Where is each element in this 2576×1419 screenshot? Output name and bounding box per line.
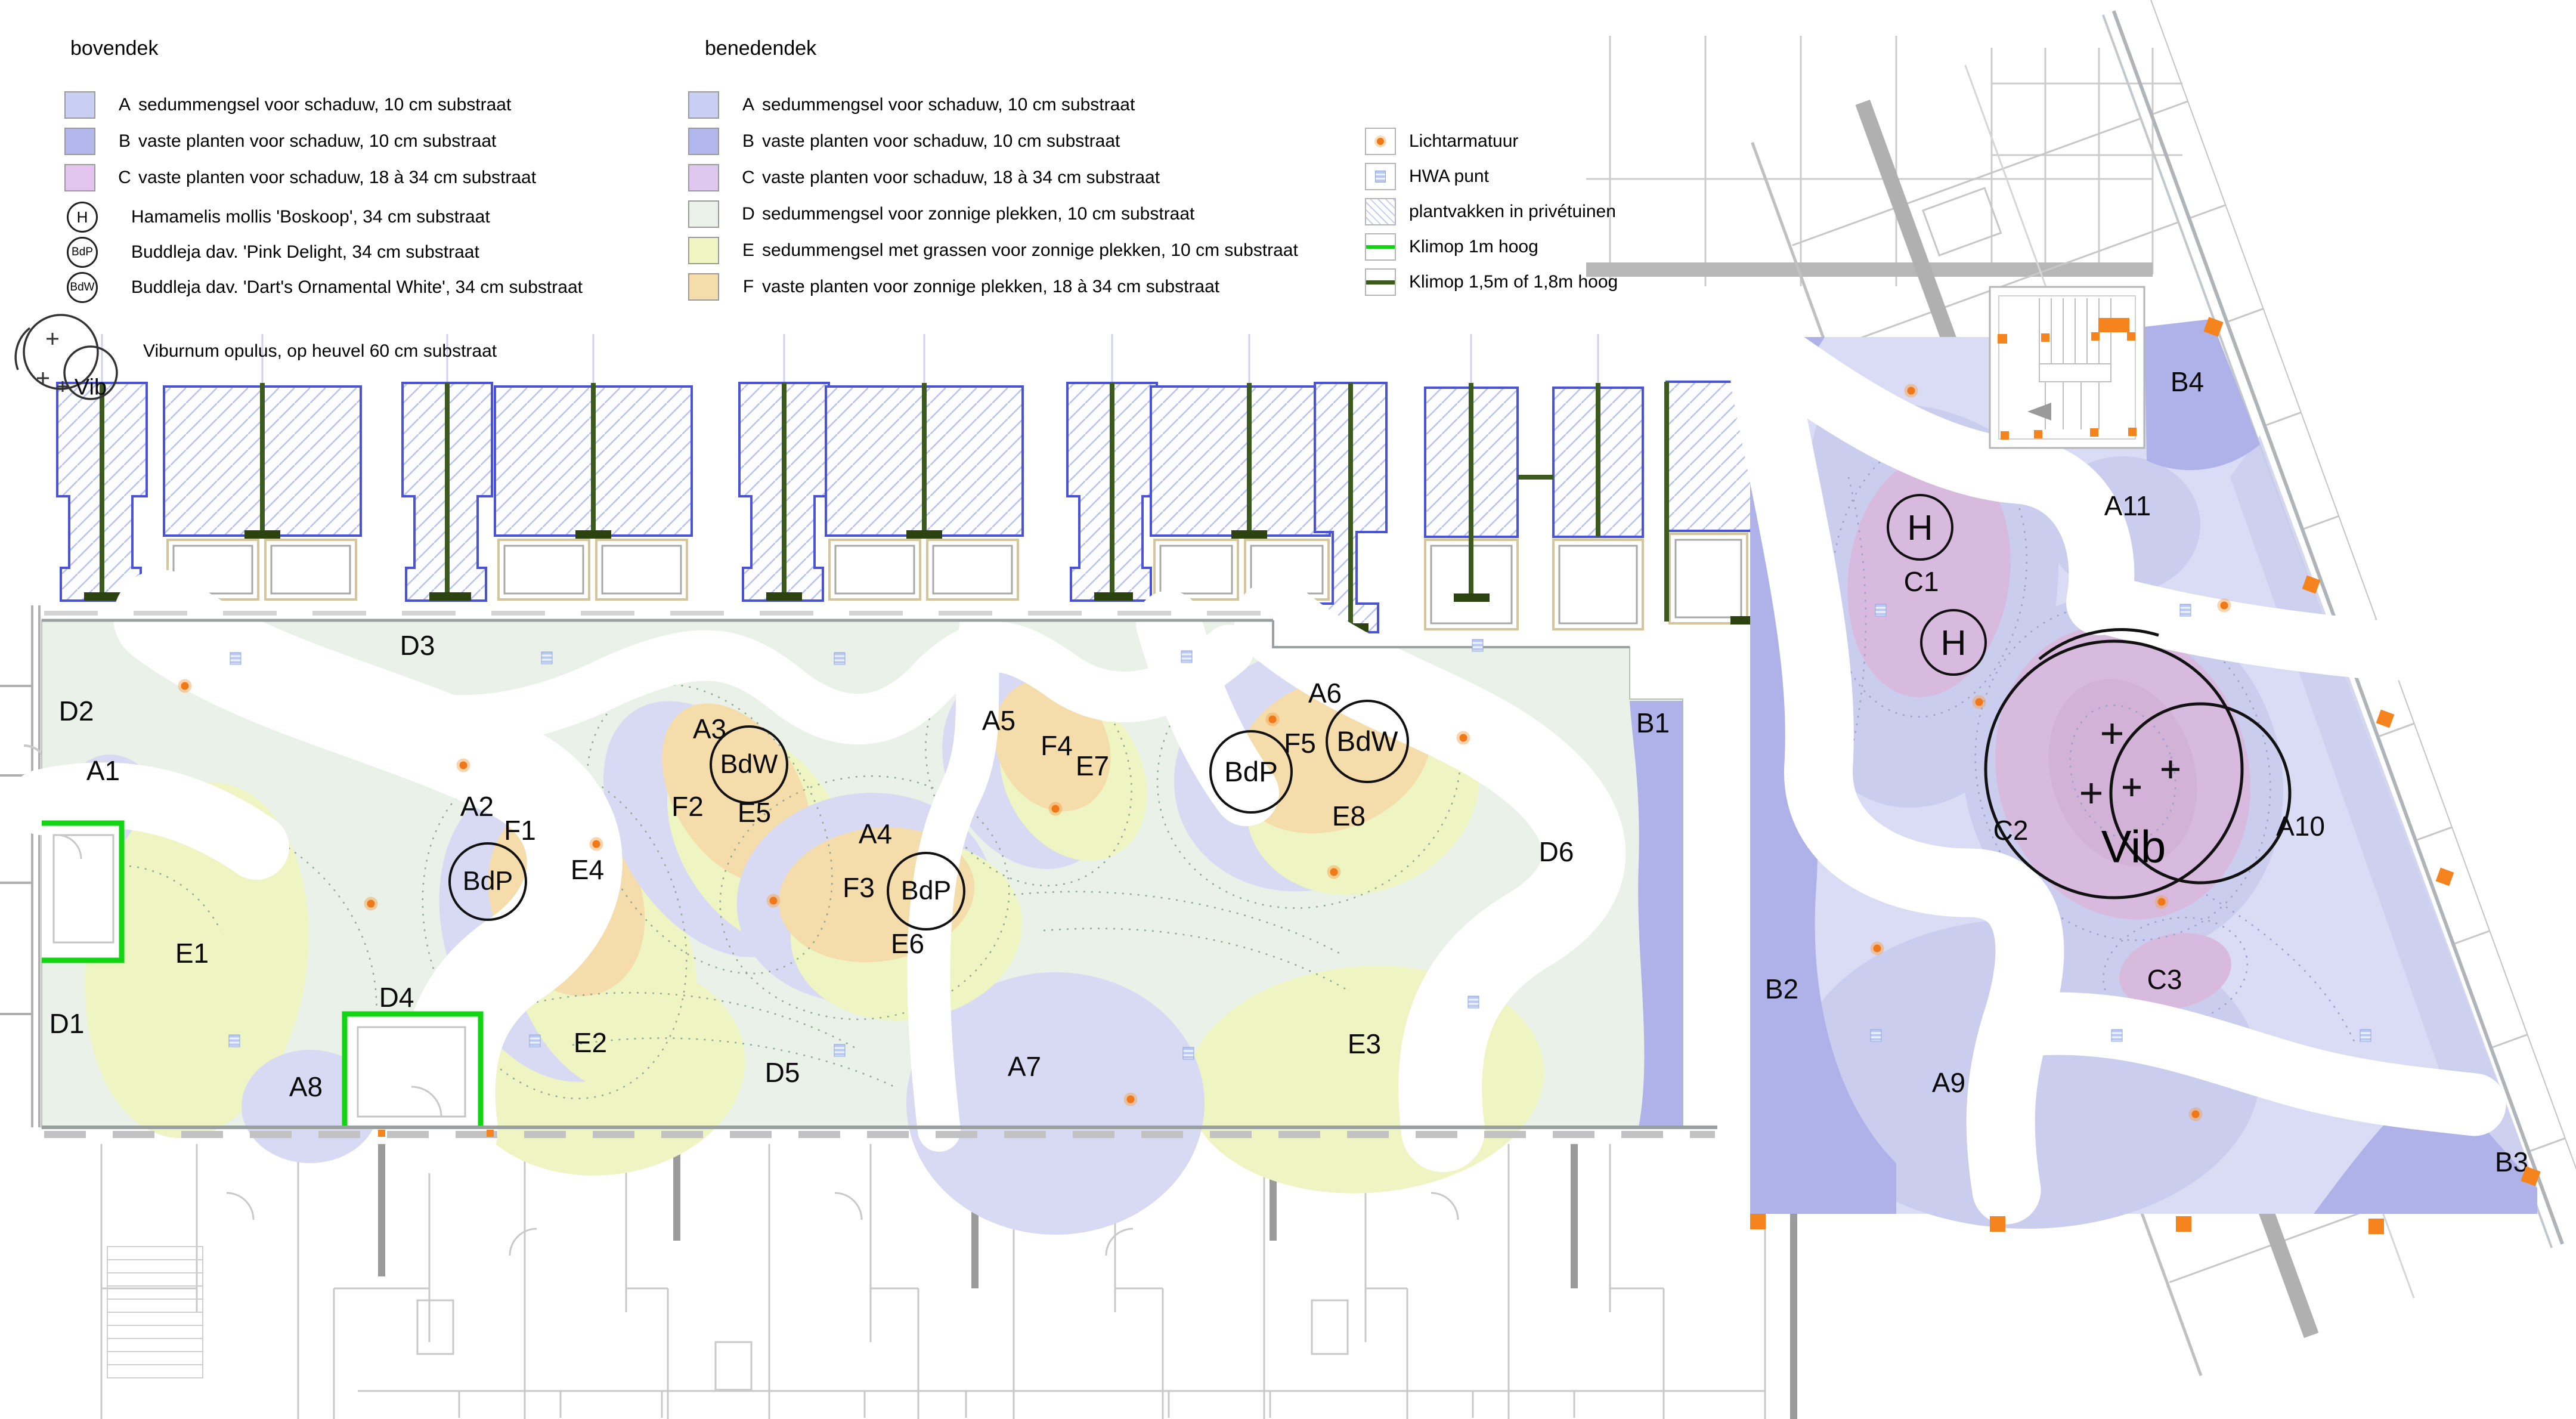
legend-bovendek-swatch-row: Cvaste planten voor schaduw, 18 à 34 cm … <box>64 164 536 191</box>
legend-symbols-row: HWA punt <box>1365 163 1489 190</box>
legend-benedendek-swatch-row: Dsedummengsel voor zonnige plekken, 10 c… <box>688 200 1194 228</box>
hwa-point-icon <box>2111 1030 2123 1042</box>
zone-label-E2: E2 <box>574 1027 607 1059</box>
legend-benedendek-title: benedendek <box>705 37 816 60</box>
light-fixture-icon <box>181 682 189 690</box>
zone-label-C2: C2 <box>1993 814 2029 846</box>
zone-label-B4: B4 <box>2171 366 2204 398</box>
light-fixture-icon <box>1330 868 1338 876</box>
zone-label-A7: A7 <box>1008 1050 1041 1083</box>
right-deck-garden <box>1750 287 2537 1229</box>
swatch-C <box>64 164 95 191</box>
zone-label-B1: B1 <box>1636 707 1670 739</box>
legend-bovendek: bovendek <box>70 37 158 83</box>
vib-legend-symbol-label: Vib <box>75 375 107 401</box>
light-fixture-icon <box>1365 128 1396 155</box>
legend-bovendek-title: bovendek <box>70 37 158 60</box>
swatch-C <box>688 164 719 191</box>
swatch-D <box>688 200 719 228</box>
zone-label-E8: E8 <box>1332 800 1366 832</box>
H-circle-icon: H <box>67 202 98 233</box>
zone-label-A4: A4 <box>859 818 892 850</box>
legend-benedendek-swatch-row: Fvaste planten voor zonnige plekken, 18 … <box>688 273 1219 301</box>
private-planting-icon <box>1365 198 1396 225</box>
light-fixture-icon <box>1460 734 1467 742</box>
building-anchor-icon <box>1750 1214 1766 1229</box>
vib-marker-label: Vib <box>2101 821 2166 873</box>
swatch-A <box>64 91 95 119</box>
swatch-B <box>64 128 95 155</box>
ivy-1m-icon <box>1365 233 1396 261</box>
legend-symbols-row: Klimop 1m hoog <box>1365 233 1538 261</box>
legend-symbols-row: plantvakken in privétuinen <box>1365 198 1616 225</box>
building-anchor-icon <box>2128 428 2137 436</box>
zone-label-A8: A8 <box>289 1071 323 1103</box>
legend-vib-row: Viburnum opulus, op heuvel 60 cm substra… <box>143 341 497 361</box>
light-fixture-icon <box>770 897 778 905</box>
zone-label-E4: E4 <box>571 854 604 886</box>
light-fixture-icon <box>367 900 375 908</box>
hwa-point-icon <box>530 1035 541 1047</box>
legend-benedendek: benedendek <box>705 37 816 83</box>
light-fixture-icon <box>2221 602 2228 610</box>
zone-label-A11: A11 <box>2104 490 2151 522</box>
building-anchor-icon <box>2127 332 2135 341</box>
BdW-marker: BdW <box>1326 700 1409 783</box>
light-fixture-icon <box>2192 1111 2200 1118</box>
zone-label-A6: A6 <box>1308 677 1342 709</box>
private-garden-plots <box>57 334 1756 632</box>
light-fixture-icon <box>460 762 467 769</box>
legend-symbols-row: Lichtarmatuur <box>1365 128 1518 155</box>
legend-bovendek-symbol-row: BdW Buddleja dav. 'Dart's Ornamental Whi… <box>67 272 583 303</box>
stairwell <box>1990 287 2144 448</box>
hwa-point-icon <box>1472 639 1484 652</box>
building-anchor-icon <box>1998 334 2007 344</box>
hwa-point-icon <box>834 1044 846 1057</box>
zone-label-D1: D1 <box>49 1007 85 1040</box>
hwa-point-icon <box>834 653 846 665</box>
zone-label-A9: A9 <box>1932 1066 1965 1099</box>
building-anchor-icon <box>378 1130 385 1137</box>
legend-vib-label: Viburnum opulus, op heuvel 60 cm substra… <box>143 341 497 361</box>
light-fixture-icon <box>593 840 600 848</box>
light-fixture-icon <box>2158 898 2166 906</box>
hwa-point-icon <box>1181 651 1193 663</box>
zone-label-D6: D6 <box>1539 836 1574 868</box>
hwa-point-icon <box>1183 1047 1194 1060</box>
legend-bovendek-symbol-row: H Hamamelis mollis 'Boskoop', 34 cm subs… <box>67 202 490 233</box>
legend-symbols-row: Klimop 1,5m of 1,8m hoog <box>1365 268 1618 296</box>
swatch-A <box>688 91 719 119</box>
zone-label-D2: D2 <box>59 695 94 727</box>
light-fixture-icon <box>1874 945 1881 953</box>
light-fixture-icon <box>1269 716 1277 724</box>
hwa-point-icon <box>1875 604 1887 617</box>
building-anchor-icon <box>2001 431 2009 440</box>
BdP-marker: BdP <box>1209 730 1293 814</box>
H-marker: H <box>1887 494 1953 561</box>
BdP-marker: BdP <box>887 852 965 930</box>
swatch-E <box>688 237 719 264</box>
legend-benedendek-swatch-row: Bvaste planten voor schaduw, 10 cm subst… <box>688 128 1120 155</box>
light-fixture-icon <box>1052 805 1060 813</box>
hwa-point-icon <box>2360 1030 2371 1042</box>
BdP-circle-icon: BdP <box>67 237 98 268</box>
building-anchor-icon <box>2098 318 2129 332</box>
building-anchor-icon <box>2041 333 2049 342</box>
zone-label-D4: D4 <box>379 981 414 1013</box>
zone-label-D3: D3 <box>400 629 435 661</box>
BdW-circle-icon: BdW <box>67 272 98 303</box>
zone-label-C1: C1 <box>1904 565 1939 598</box>
hwa-point-icon <box>2180 604 2191 617</box>
building-anchor-icon <box>2368 1219 2384 1234</box>
legend-benedendek-swatch-row: Asedummengsel voor schaduw, 10 cm substr… <box>688 91 1135 119</box>
building-anchor-icon <box>2034 430 2042 438</box>
zone-label-B2: B2 <box>1765 973 1798 1005</box>
hwa-point-icon <box>1468 996 1479 1009</box>
zone-label-A5: A5 <box>982 704 1015 737</box>
zone-label-A1: A1 <box>86 755 120 787</box>
legend-benedendek-swatch-row: Cvaste planten voor schaduw, 18 à 34 cm … <box>688 164 1160 191</box>
legend-bovendek-symbol-row: BdP Buddleja dav. 'Pink Delight, 34 cm s… <box>67 237 479 268</box>
zone-label-C3: C3 <box>2147 963 2182 996</box>
legend-bovendek-swatch-row: Bvaste planten voor schaduw, 10 cm subst… <box>64 128 496 155</box>
H-marker: H <box>1920 609 1987 676</box>
BdW-marker: BdW <box>710 725 788 804</box>
building-anchor-icon <box>2176 1216 2191 1232</box>
ivy-tall-icon <box>1365 268 1396 296</box>
light-fixture-icon <box>1908 387 1915 395</box>
zone-label-D5: D5 <box>765 1056 800 1089</box>
zone-label-F4: F4 <box>1041 729 1073 762</box>
zone-label-F2: F2 <box>671 790 704 823</box>
zone-label-E6: E6 <box>891 928 924 960</box>
zone-label-E7: E7 <box>1076 750 1109 782</box>
hwa-point-icon <box>1871 1030 1882 1042</box>
building-anchor-icon <box>1990 1216 2005 1232</box>
light-fixture-icon <box>1127 1096 1135 1103</box>
zone-label-A2: A2 <box>460 790 494 823</box>
swatch-F <box>688 273 719 301</box>
hwa-point-icon <box>1365 163 1396 190</box>
zone-label-F1: F1 <box>504 814 536 846</box>
left-deck-garden <box>42 586 1717 1235</box>
hwa-point-icon <box>541 652 553 664</box>
zone-label-A10: A10 <box>2276 810 2325 842</box>
planting-plan-canvas: bovendek benedendek Viburnum opulus, op … <box>0 0 2576 1419</box>
hwa-point-icon <box>230 653 241 665</box>
legend-benedendek-swatch-row: Esedummengsel met grassen voor zonnige p… <box>688 237 1298 264</box>
building-anchor-icon <box>487 1130 494 1137</box>
legend-bovendek-swatch-row: Asedummengsel voor schaduw, 10 cm substr… <box>64 91 511 119</box>
zone-label-E3: E3 <box>1348 1028 1381 1060</box>
building-anchor-icon <box>2090 428 2098 437</box>
zone-label-E1: E1 <box>175 937 209 969</box>
hwa-point-icon <box>229 1035 240 1047</box>
swatch-B <box>688 128 719 155</box>
light-fixture-icon <box>1976 698 1983 706</box>
BdP-marker: BdP <box>448 842 527 921</box>
building-anchor-icon <box>2091 332 2100 341</box>
zone-label-F3: F3 <box>843 871 875 904</box>
